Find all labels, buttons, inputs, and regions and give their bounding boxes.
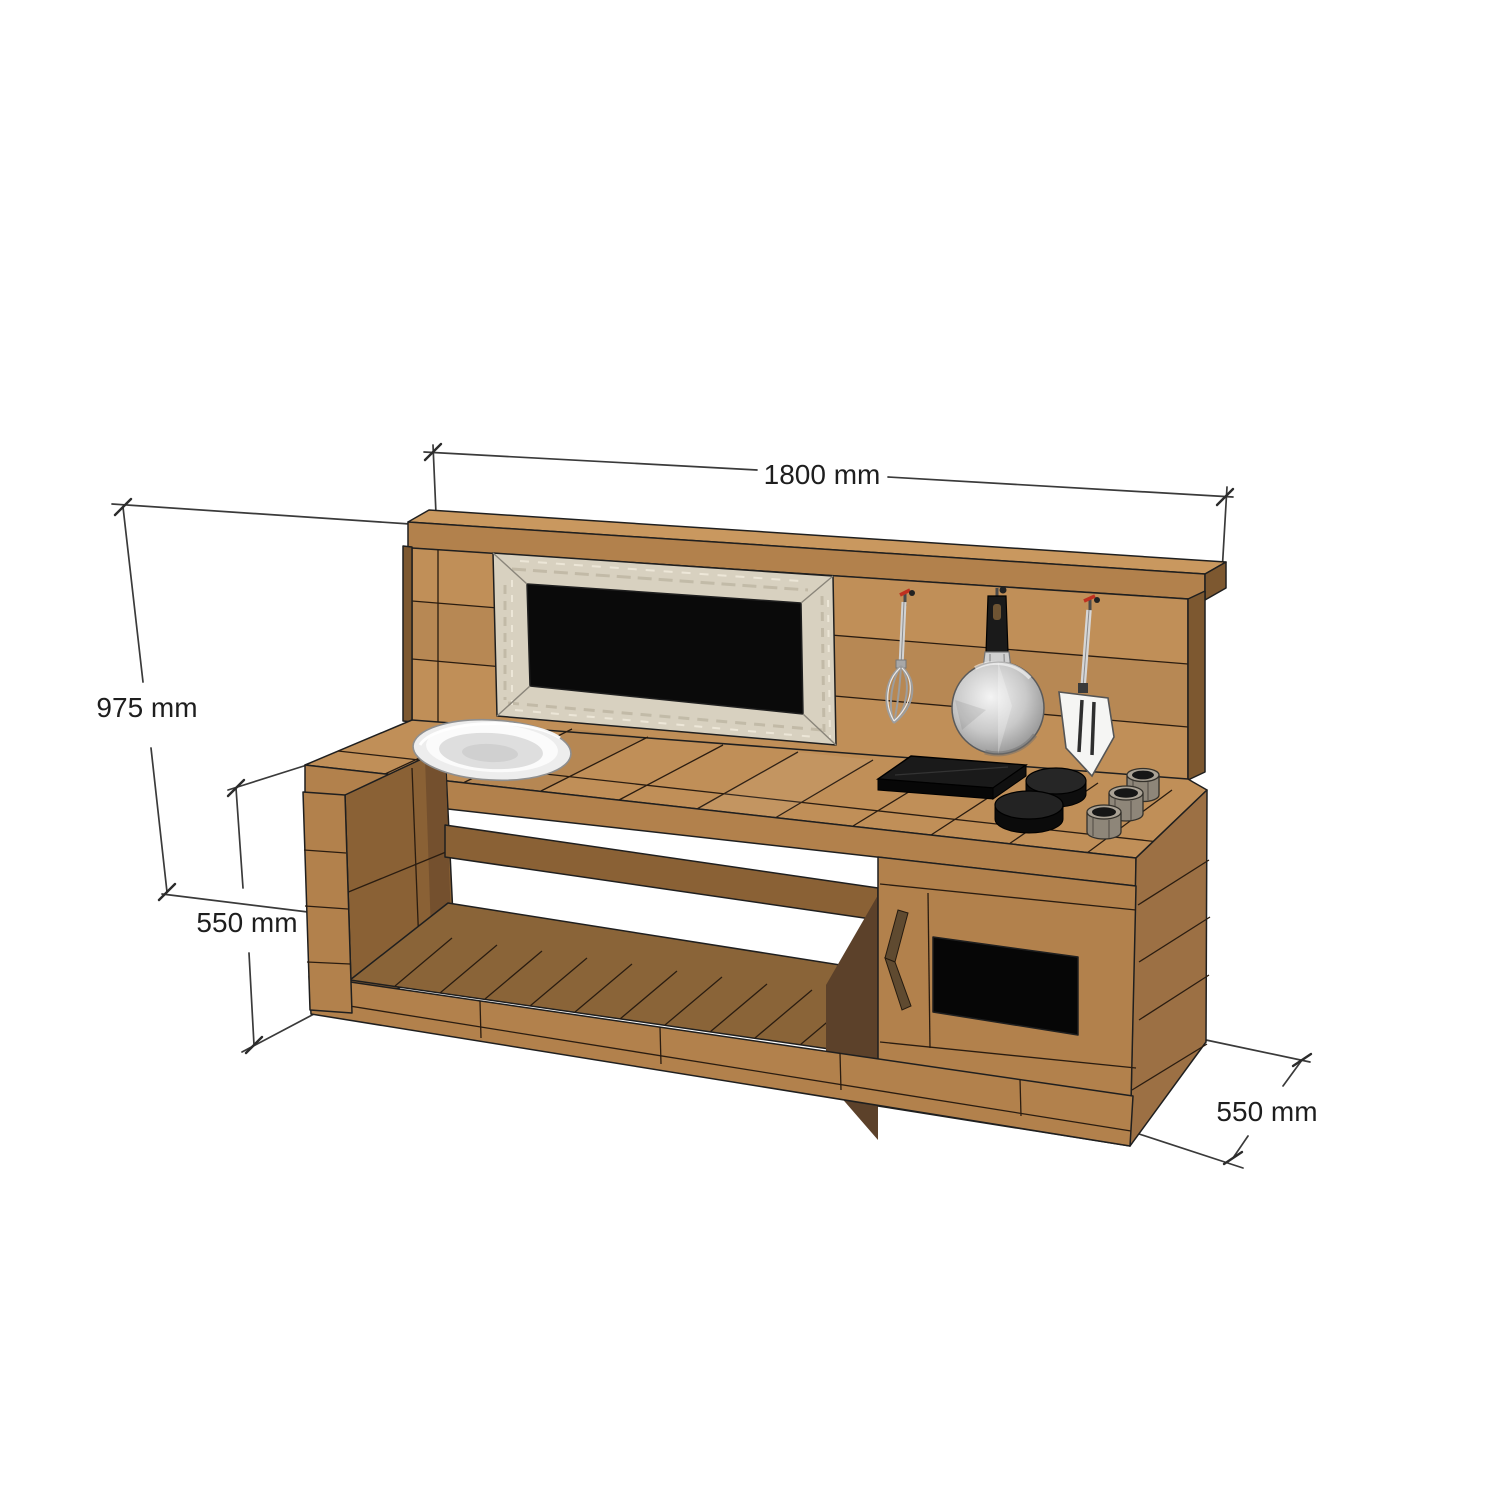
backboard-right-side (1188, 591, 1205, 780)
dimension-counter-height: 550 mm (196, 765, 314, 1053)
drawing-canvas: 1800 mm 975 mm 550 mm 550 mm (0, 0, 1500, 1500)
backboard-left-edge (403, 546, 412, 722)
burner-front (995, 791, 1063, 833)
dimension-depth-label: 550 mm (1216, 1096, 1317, 1127)
dimension-width-label: 1800 mm (764, 459, 881, 490)
left-panel-front (303, 792, 352, 1013)
dimension-counter-height-label: 550 mm (196, 907, 297, 938)
chalkboard (493, 553, 836, 745)
log-pot (1087, 805, 1121, 839)
dimension-height-label: 975 mm (96, 692, 197, 723)
mud-kitchen-dimension-drawing: 1800 mm 975 mm 550 mm 550 mm (0, 0, 1500, 1500)
